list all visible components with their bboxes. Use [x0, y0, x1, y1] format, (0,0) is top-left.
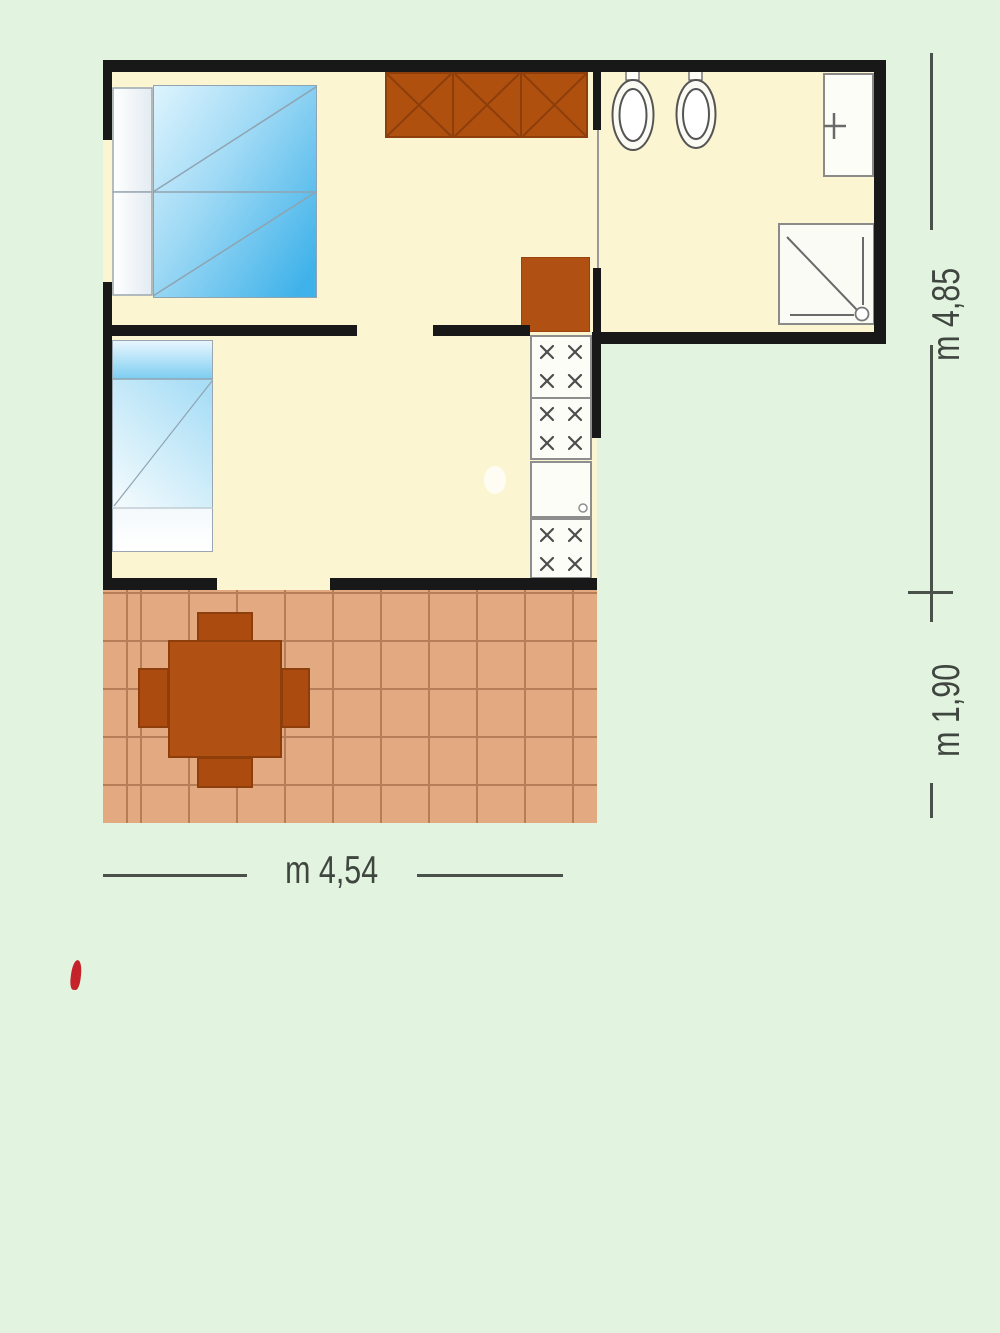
shower — [778, 223, 875, 325]
interior-wall-bedrooms-left — [103, 325, 357, 336]
red-mark — [69, 960, 83, 991]
dim-label-right-upper: m 4,85 — [927, 234, 967, 394]
dim-line-right-1 — [930, 53, 933, 230]
bathroom-wall-upper — [593, 60, 601, 130]
exterior-wall-bottom-right — [330, 578, 597, 590]
kitchen-sink — [579, 504, 587, 512]
exterior-wall-right-bathroom — [874, 60, 886, 344]
terrace-chair-bottom — [197, 757, 253, 788]
wardrobe — [385, 72, 588, 138]
terrace-table — [168, 640, 282, 758]
exterior-wall-left-upper — [103, 60, 112, 140]
exterior-wall-bottom-left — [103, 578, 217, 590]
dim-line-right-3 — [930, 567, 933, 622]
exterior-wall-top-main — [103, 60, 596, 72]
washbasin — [823, 73, 874, 177]
toilet-2 — [675, 66, 717, 152]
terrace-chair-left — [138, 668, 169, 728]
dim-label-right-lower: m 1,90 — [927, 630, 967, 790]
storage-cabinet — [521, 257, 590, 332]
dim-line-bottom-right — [417, 874, 563, 877]
dim-label-bottom: m 4,54 — [247, 848, 417, 894]
single-bed — [112, 340, 213, 552]
dim-line-right-2 — [930, 345, 933, 567]
highlight-artifact — [484, 466, 506, 494]
wall-bathroom-bottom — [597, 332, 886, 344]
kitchen-units — [530, 335, 592, 580]
terrace-chair-right — [281, 668, 310, 728]
dim-line-right-4 — [930, 783, 933, 818]
dim-line-bottom-left — [103, 874, 247, 877]
double-bed — [153, 85, 317, 298]
interior-wall-bedrooms-right — [433, 325, 530, 336]
double-bed-pillows — [112, 87, 153, 296]
exterior-wall-top-bathroom — [599, 60, 886, 72]
dim-tick-right — [908, 591, 953, 594]
exterior-wall-right-kitchen — [592, 332, 601, 438]
toilet-1 — [611, 66, 655, 154]
bathroom-wall-lower — [593, 268, 601, 332]
bathroom-door-opening — [597, 130, 599, 268]
terrace-chair-top — [197, 612, 253, 642]
